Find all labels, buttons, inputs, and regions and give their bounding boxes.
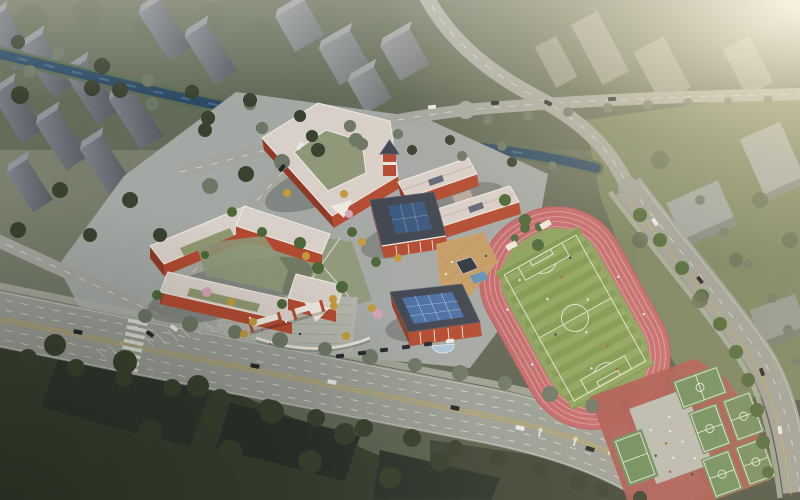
aerial-campus-rendering [0, 0, 800, 500]
top-haze-overlay [0, 0, 800, 100]
rendering-canvas [0, 0, 800, 500]
